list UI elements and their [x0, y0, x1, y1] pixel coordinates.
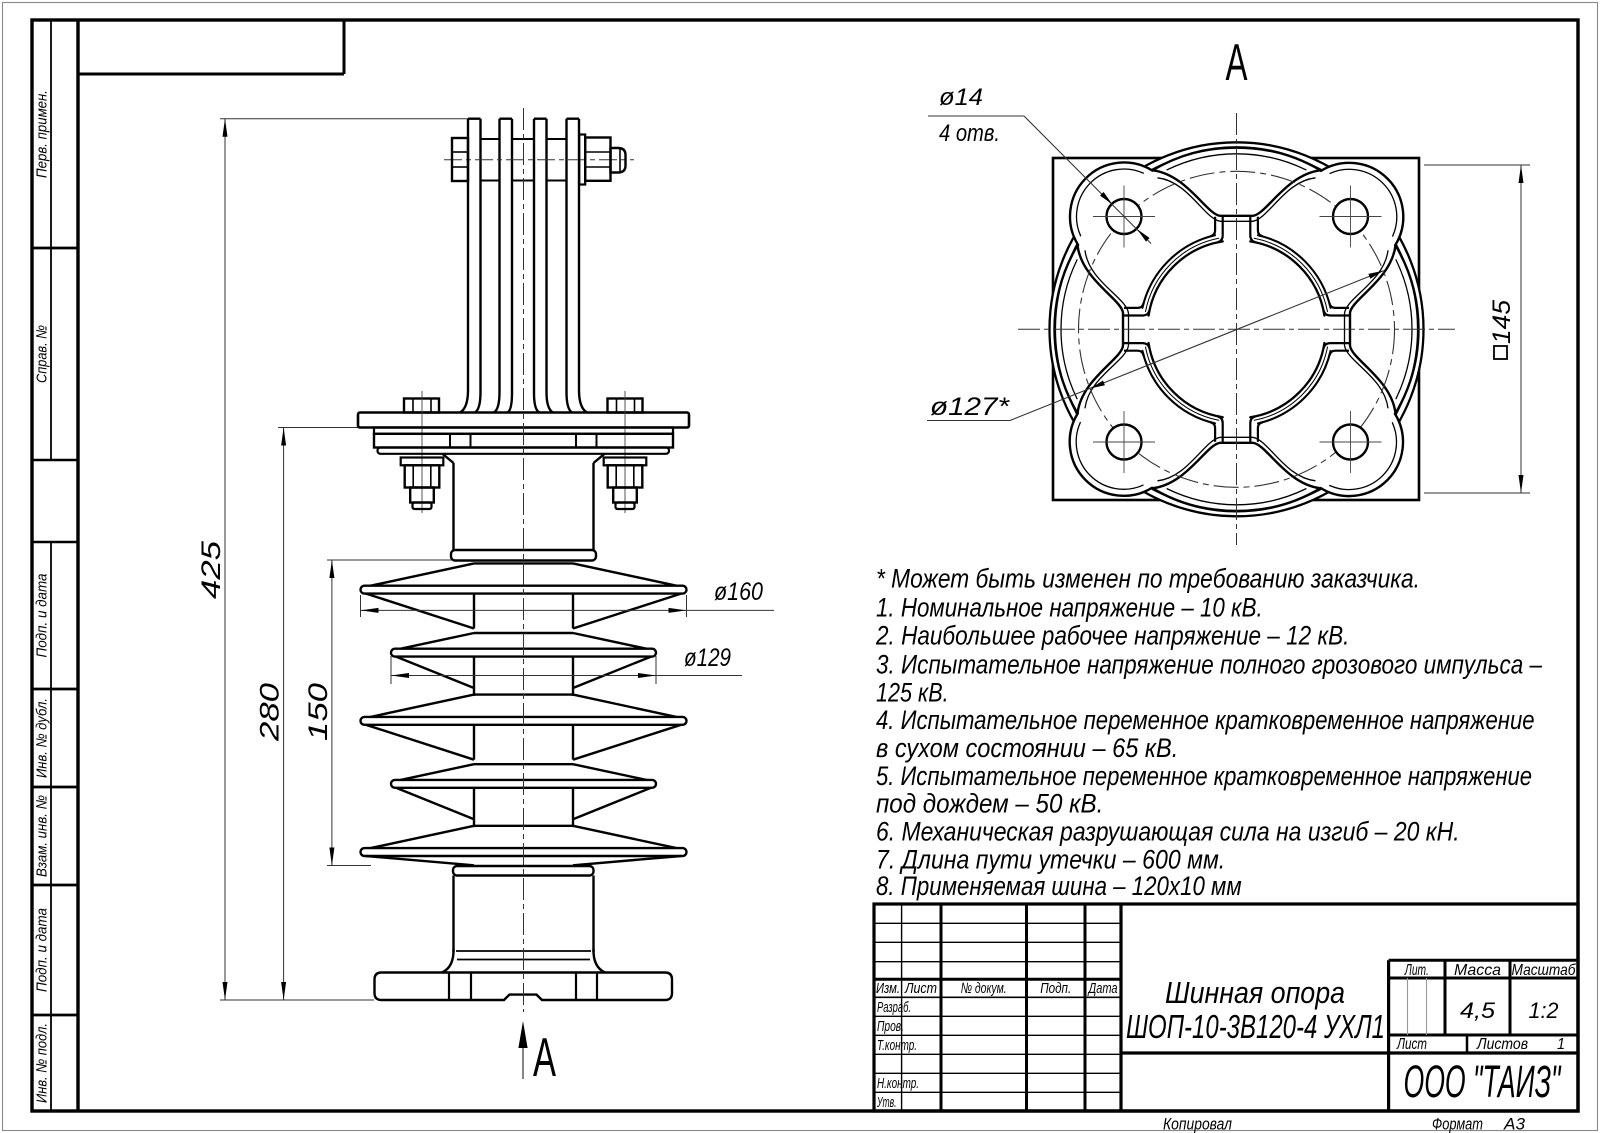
svg-text:Лист: Лист	[904, 980, 937, 997]
svg-text:Справ. №: Справ. №	[34, 325, 51, 383]
svg-text:1:2: 1:2	[1529, 998, 1559, 1023]
svg-text:ШОП-10-3В120-4 УХЛ1: ШОП-10-3В120-4 УХЛ1	[1126, 1008, 1385, 1045]
svg-text:5. Испытательное переменное кр: 5. Испытательное переменное кратковремен…	[876, 761, 1532, 791]
svg-text:Формат: Формат	[1432, 1115, 1483, 1133]
svg-text:1: 1	[1557, 1036, 1565, 1053]
svg-text:Шинная опора: Шинная опора	[1165, 975, 1345, 1010]
svg-text:Подп.: Подп.	[1040, 980, 1071, 997]
svg-text:Утв.: Утв.	[876, 1094, 896, 1111]
svg-text:Взам. инв. №: Взам. инв. №	[34, 795, 51, 877]
svg-text:1. Номинальное напряжение – 10: 1. Номинальное напряжение – 10 кВ.	[876, 592, 1263, 622]
svg-text:А: А	[1226, 34, 1248, 92]
svg-text:3. Испытательное напряжение по: 3. Испытательное напряжение полного гроз…	[876, 650, 1543, 680]
svg-text:Масса: Масса	[1454, 962, 1501, 979]
svg-text:150: 150	[303, 683, 333, 741]
svg-text:ø14: ø14	[939, 84, 983, 111]
svg-text:4,5: 4,5	[1460, 998, 1496, 1023]
svg-text:2. Наибольшее рабочее напряжен: 2. Наибольшее рабочее напряжение – 12 кВ…	[875, 621, 1349, 651]
svg-text:Подп. и дата: Подп. и дата	[34, 574, 51, 658]
svg-text:А: А	[533, 1026, 556, 1088]
svg-text:Пров.: Пров.	[877, 1018, 904, 1035]
svg-text:в сухом состоянии – 65 кВ.: в сухом состоянии – 65 кВ.	[876, 733, 1178, 763]
svg-text:8. Применяемая шина – 120х10 м: 8. Применяемая шина – 120х10 мм	[876, 871, 1242, 901]
svg-text:под дождем – 50 кВ.: под дождем – 50 кВ.	[876, 788, 1103, 818]
svg-text:4 отв.: 4 отв.	[939, 120, 1000, 147]
svg-text:Перв. примен.: Перв. примен.	[34, 90, 51, 178]
svg-text:Н.контр.: Н.контр.	[877, 1075, 919, 1092]
svg-text:Масштаб: Масштаб	[1512, 962, 1577, 979]
svg-text:145: 145	[1488, 300, 1516, 344]
svg-text:Лит.: Лит.	[1404, 962, 1429, 979]
svg-text:6. Механическая разрушающая си: 6. Механическая разрушающая сила на изги…	[876, 816, 1460, 846]
svg-text:ø160: ø160	[714, 578, 763, 606]
svg-text:* Может быть изменен по требов: * Может быть изменен по требованию заказ…	[876, 563, 1420, 593]
svg-text:ООО "ТАИЗ": ООО "ТАИЗ"	[1404, 1056, 1562, 1107]
svg-text:Копировал: Копировал	[1163, 1115, 1232, 1133]
svg-text:Подп. и дата: Подп. и дата	[34, 908, 51, 992]
svg-text:Дата: Дата	[1087, 980, 1117, 997]
svg-text:7. Длина пути утечки – 600 мм.: 7. Длина пути утечки – 600 мм.	[876, 845, 1225, 875]
svg-text:Лист: Лист	[1396, 1036, 1427, 1053]
svg-text:№ докум.: № докум.	[961, 980, 1007, 997]
svg-text:4. Испытательное переменное кр: 4. Испытательное переменное кратковремен…	[876, 705, 1535, 735]
svg-text:Разраб.: Разраб.	[877, 999, 911, 1016]
svg-text:Листов: Листов	[1476, 1036, 1528, 1053]
svg-text:А3: А3	[1503, 1115, 1526, 1133]
svg-text:Инв. № дубл.: Инв. № дубл.	[34, 698, 51, 778]
svg-text:Инв. № подл.: Инв. № подл.	[34, 1023, 51, 1103]
svg-text:425: 425	[196, 540, 226, 599]
svg-text:125 кВ.: 125 кВ.	[876, 678, 949, 708]
svg-text:Т.контр.: Т.контр.	[877, 1037, 917, 1054]
svg-text:ø127*: ø127*	[930, 393, 1010, 421]
svg-text:Изм.: Изм.	[876, 980, 900, 997]
svg-text:ø129: ø129	[684, 644, 731, 672]
svg-text:280: 280	[255, 683, 285, 742]
